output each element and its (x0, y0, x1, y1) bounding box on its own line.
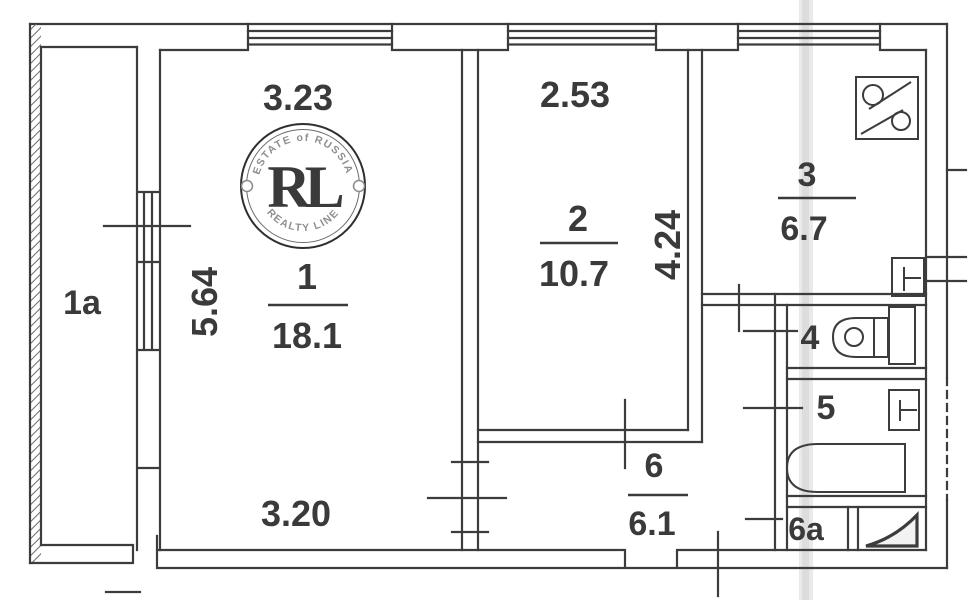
hall-area: 6.1 (628, 505, 675, 543)
vent-corner-icon (866, 515, 917, 546)
watermark-right-dot (354, 181, 365, 192)
hall-number: 6 (645, 447, 664, 485)
room1-room2-wall (452, 50, 488, 550)
balcony-room1-wall (137, 47, 160, 550)
watermark-left-dot (242, 181, 253, 192)
room2-bottom-wall (478, 430, 702, 442)
wc-number: 4 (801, 319, 820, 357)
washbasin-icon (889, 390, 919, 430)
window-room1 (248, 31, 392, 45)
bath-number: 5 (817, 389, 836, 427)
bath-block-left-wall (775, 294, 787, 550)
balcony-hatched-wall (30, 24, 41, 563)
dim-room2-depth: 4.24 (647, 210, 688, 280)
stove-icon (856, 77, 918, 139)
dim-room1-bottom: 3.20 (261, 493, 331, 534)
realty-line-watermark: ESTATE of RUSSIA RL REALTY LINE (241, 124, 365, 248)
room-balcony-label: 1a (63, 284, 102, 322)
window-room2 (508, 31, 656, 45)
floor-plan-svg: 3.23 2.53 5.64 4.24 3.20 1a 1 18.1 2 10.… (0, 0, 978, 600)
dim-room2-width: 2.53 (540, 74, 610, 115)
floor-plan-page: 3.23 2.53 5.64 4.24 3.20 1a 1 18.1 2 10.… (0, 0, 978, 600)
room1-number: 1 (297, 256, 317, 297)
labels: 3.23 2.53 5.64 4.24 3.20 1a 1 18.1 2 10.… (63, 74, 856, 547)
dim-room1-width: 3.23 (263, 77, 333, 118)
room2-area: 10.7 (539, 253, 609, 294)
kitchen-number: 3 (798, 156, 817, 194)
room1-area: 18.1 (272, 315, 342, 356)
kitchen-area: 6.7 (780, 210, 827, 248)
scan-artifact-band (799, 0, 813, 600)
room2-right-wall (688, 50, 702, 442)
room2-number: 2 (568, 198, 588, 239)
closet-number: 6a (788, 511, 824, 547)
dim-room1-depth: 5.64 (184, 267, 225, 337)
sink-icon (892, 258, 924, 296)
closet-divider-wall (848, 507, 858, 550)
walls (30, 24, 966, 596)
balcony-bottom-wall (30, 545, 133, 563)
toilet-icon (833, 307, 915, 364)
